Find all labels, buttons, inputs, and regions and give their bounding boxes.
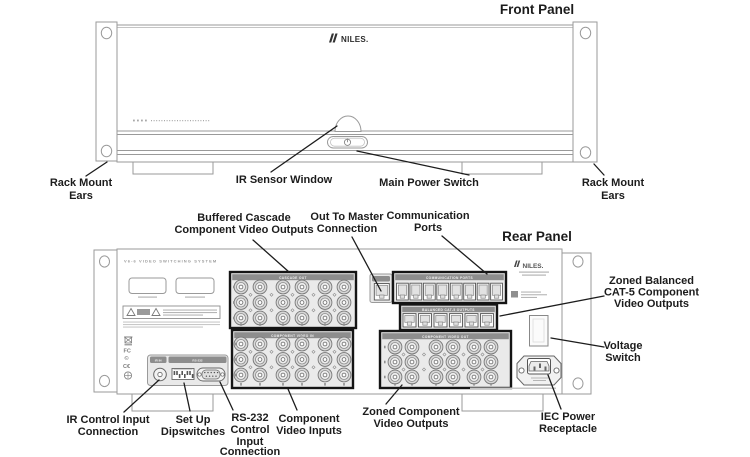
ir-in-label: IR IN (155, 358, 162, 362)
callout-rs232-control: Connection (220, 446, 281, 457)
rear-panel-title: Rear Panel (502, 229, 572, 244)
bnc-connector (276, 280, 290, 294)
panel-foot (133, 162, 213, 174)
bnc-connector (405, 355, 419, 369)
port-number-mark (394, 383, 396, 386)
callout-rack-mount-ears-left: Ears (69, 190, 93, 202)
callout-setup-dipswitches: Dipswitches (161, 426, 225, 438)
callout-component-inputs: Video Inputs (276, 425, 342, 437)
callout-main-power-switch: Main Power Switch (379, 177, 479, 189)
row-label-mark (235, 358, 237, 361)
bnc-connector (405, 370, 419, 384)
bnc-connector (337, 280, 351, 294)
buffered-cascade-grid: CASCADE OUT (230, 272, 356, 328)
bnc-connector (337, 337, 351, 351)
bnc-connector (253, 337, 267, 351)
bnc-connector (318, 311, 332, 325)
port-number-mark (411, 383, 413, 386)
bnc-connector (295, 368, 309, 382)
callout-rs232-control: RS-232 (231, 412, 268, 424)
bnc-connector (276, 296, 290, 310)
bnc-connector (234, 296, 248, 310)
bnc-connector (337, 353, 351, 367)
out-to-master-jack (370, 274, 392, 303)
rack-mount-ear (562, 253, 591, 394)
fcc-mark: FC (124, 349, 131, 355)
bnc-connector (337, 368, 351, 382)
callout-zoned-component: Video Outputs (374, 418, 449, 430)
callout-ir-sensor-window: IR Sensor Window (236, 174, 333, 186)
panel-foot (462, 394, 543, 411)
bnc-connector (295, 353, 309, 367)
rear-panel-drawing: Rear Panel V6-6 VIDEO SWITCHING SYSTEM (66, 210, 699, 457)
communication-strip-label: COMMUNICATION PORTS (426, 276, 473, 280)
port-number-mark (343, 383, 345, 386)
rack-mount-ear (573, 22, 597, 162)
callout-voltage-switch: Voltage (604, 340, 643, 352)
bnc-connector (484, 340, 498, 354)
bnc-connector (429, 340, 443, 354)
bnc-connector (295, 311, 309, 325)
component-input-grid: COMPONENT VIDEO IN (232, 330, 353, 388)
voltage-switch (530, 316, 549, 347)
port-number-mark (452, 383, 454, 386)
port-number-mark (473, 383, 475, 386)
bnc-connector (388, 355, 402, 369)
panel-foot (132, 394, 213, 411)
rs232-chip-label: RS-232 (192, 358, 203, 362)
bnc-connector (446, 370, 460, 384)
row-label-mark (384, 376, 386, 379)
port-number-mark (282, 323, 284, 326)
bnc-connector (405, 340, 419, 354)
bnc-connector (234, 280, 248, 294)
row-label-mark (233, 286, 235, 289)
port-number-mark (259, 323, 261, 326)
bnc-connector (234, 311, 248, 325)
bnc-connector (388, 340, 402, 354)
port-number-mark (301, 383, 303, 386)
device-diagram: Front Panel (0, 0, 750, 457)
rear-bottom-print (470, 388, 556, 390)
callout-voltage-switch: Switch (605, 352, 641, 364)
callout-zoned-balanced: Video Outputs (614, 298, 689, 310)
row-label-mark (384, 346, 386, 349)
rj45-port (464, 283, 476, 300)
port-number-mark (240, 323, 242, 326)
bnc-connector (276, 311, 290, 325)
callout-buffered-cascade: Component Video Outputs (174, 224, 313, 236)
cascade-strip-label: CASCADE OUT (279, 276, 307, 280)
brand-text: NILES. (341, 35, 369, 44)
callout-out-to-master: Connection (317, 223, 378, 235)
row-label-mark (233, 301, 235, 304)
bnc-connector (295, 296, 309, 310)
callout-rack-mount-ears-left: Rack Mount (50, 177, 113, 189)
zoned-out-strip-label: COMPONENT VIDEO OUT (422, 335, 469, 339)
balanced-strip-label: BALANCED CAT-5 OUTPUTS (422, 308, 475, 312)
iec-receptacle (517, 356, 561, 385)
port-number-mark (324, 323, 326, 326)
port-number-mark (301, 323, 303, 326)
rj45-port (450, 283, 462, 300)
callout-setup-dipswitches: Set Up (176, 414, 211, 426)
rj45-port (410, 283, 422, 300)
bnc-connector (318, 368, 332, 382)
bnc-connector (484, 355, 498, 369)
bnc-connector (295, 280, 309, 294)
callout-iec-power: IEC Power (541, 411, 596, 423)
callout-iec-power: Receptacle (539, 423, 597, 435)
bnc-connector (276, 368, 290, 382)
bnc-connector (253, 311, 267, 325)
row-label-mark (235, 374, 237, 377)
diagram-canvas: Front Panel (0, 0, 750, 457)
rj45-port (397, 283, 409, 300)
leader-line (86, 162, 107, 176)
bnc-connector (253, 368, 267, 382)
bnc-connector (253, 353, 267, 367)
row-label-mark (233, 317, 235, 320)
callout-component-inputs: Component (278, 413, 339, 425)
component-in-strip-label: COMPONENT VIDEO IN (271, 334, 314, 338)
cert-icon (124, 372, 131, 379)
rack-mount-ear (96, 22, 117, 161)
callout-ir-control: IR Control Input (66, 414, 149, 426)
copyright-mark: © (125, 355, 129, 362)
rj45-port (423, 283, 435, 300)
row-label-mark (384, 361, 386, 364)
bnc-connector (446, 355, 460, 369)
callout-ir-control: Connection (78, 426, 139, 438)
ir-input-jack (154, 368, 167, 381)
communication-ports-row: COMMUNICATION PORTS (393, 272, 506, 303)
db9-connector (197, 368, 225, 381)
port-number-mark (259, 383, 261, 386)
bnc-connector (318, 337, 332, 351)
callout-rack-mount-ears-right: Ears (601, 190, 625, 202)
zoned-output-grid: COMPONENT VIDEO OUT (380, 331, 511, 388)
bnc-connector (318, 280, 332, 294)
dipswitch-block (172, 369, 194, 380)
port-number-mark (282, 383, 284, 386)
ce-mark: C€ (123, 364, 130, 370)
rj45-port (481, 314, 494, 327)
bnc-connector (467, 340, 481, 354)
front-panel-title: Front Panel (500, 2, 574, 17)
warning-label (123, 306, 220, 328)
bnc-connector (276, 337, 290, 351)
bnc-connector (446, 340, 460, 354)
port-number-mark (490, 383, 492, 386)
rj45-port (419, 314, 432, 327)
brand-text: NILES. (523, 263, 544, 270)
front-panel-drawing: Front Panel (50, 2, 645, 202)
bnc-connector (276, 353, 290, 367)
callout-zoned-component: Zoned Component (362, 406, 459, 418)
callout-out-to-master: Out To Master (310, 211, 384, 223)
port-number-mark (240, 383, 242, 386)
rj45-port (403, 314, 416, 327)
callout-zoned-balanced: Zoned Balanced (609, 275, 694, 287)
bnc-connector (388, 370, 402, 384)
callout-rack-mount-ears-right: Rack Mount (582, 177, 645, 189)
callout-buffered-cascade: Buffered Cascade (197, 212, 291, 224)
row-label-mark (235, 343, 237, 346)
rj45-port (434, 314, 447, 327)
bnc-connector (429, 355, 443, 369)
leader-line (594, 164, 604, 175)
port-number-mark (435, 383, 437, 386)
callout-rs232-control: Control (230, 424, 269, 436)
control-block: IR IN RS-232 (148, 355, 229, 386)
bnc-connector (467, 370, 481, 384)
bnc-connector (295, 337, 309, 351)
bnc-connector (484, 370, 498, 384)
rj45-port (437, 283, 449, 300)
bnc-connector (429, 370, 443, 384)
bnc-connector (253, 280, 267, 294)
callout-zoned-balanced: CAT-5 Component (604, 287, 699, 299)
rj45-port (450, 314, 463, 327)
callout-communication-ports: Ports (414, 222, 442, 234)
rj45-port (465, 314, 478, 327)
callout-communication-ports: Communication (386, 210, 469, 222)
bnc-connector (337, 296, 351, 310)
port-number-mark (324, 383, 326, 386)
bnc-connector (318, 296, 332, 310)
port-number-mark (343, 323, 345, 326)
bnc-connector (318, 353, 332, 367)
main-power-switch (328, 137, 368, 149)
panel-foot (462, 162, 542, 174)
rj45-port (491, 283, 503, 300)
bnc-connector (337, 311, 351, 325)
bnc-connector (253, 296, 267, 310)
rack-mount-ear (94, 250, 117, 392)
rj45-port (374, 284, 389, 301)
rj45-port (477, 283, 489, 300)
bnc-connector (467, 355, 481, 369)
balanced-cat5-row: BALANCED CAT-5 OUTPUTS (400, 305, 497, 331)
model-text: V6-6 VIDEO SWITCHING SYSTEM (124, 259, 217, 264)
